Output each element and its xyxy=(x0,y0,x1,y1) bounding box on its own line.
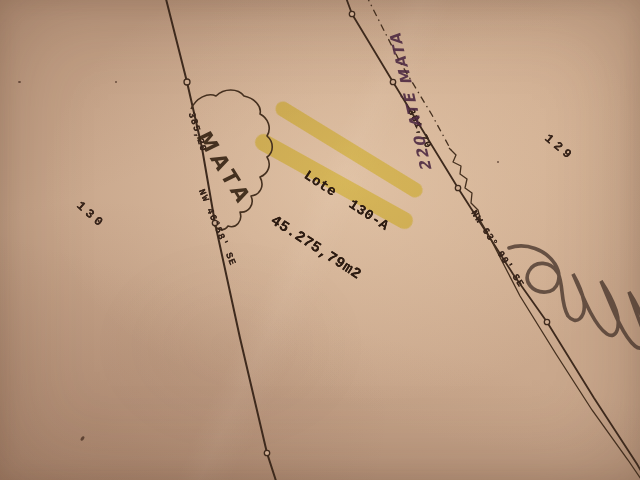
station-marker xyxy=(264,450,269,455)
survey-map-photo: 130 129 Lote 130-A 45.275,79m2 385,20 NW… xyxy=(0,0,640,480)
station-marker xyxy=(390,79,395,84)
station-marker xyxy=(544,319,549,324)
signature-scribble xyxy=(509,246,640,362)
station-marker xyxy=(349,11,354,16)
station-marker xyxy=(455,185,460,190)
station-marker xyxy=(184,79,190,85)
